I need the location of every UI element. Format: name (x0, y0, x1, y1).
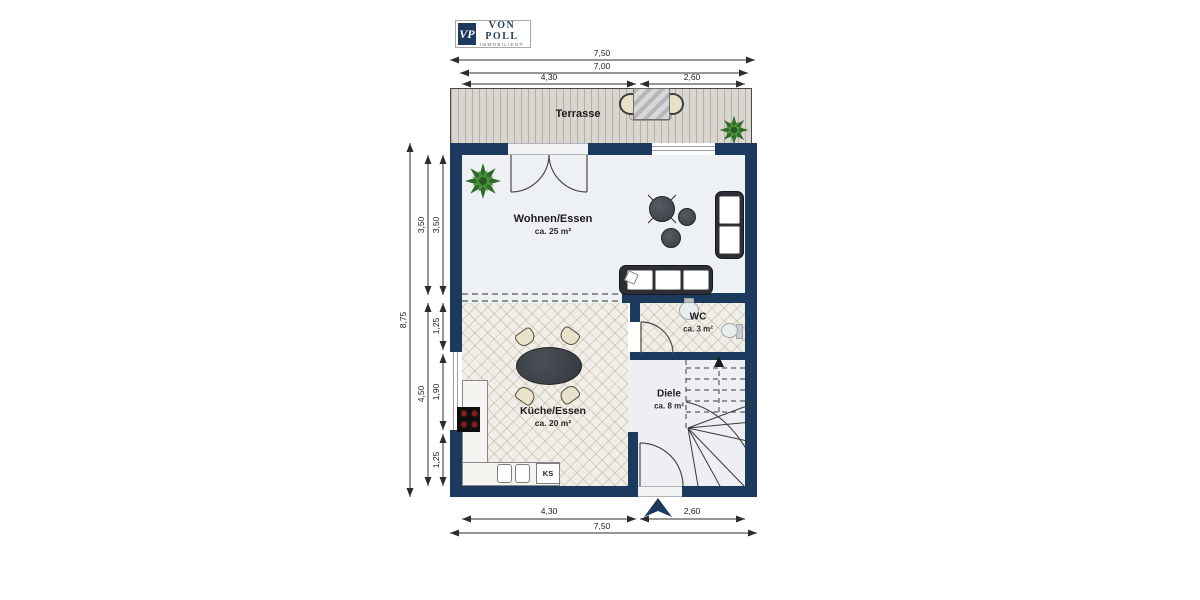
dining-table (516, 347, 582, 385)
terrace-deck (450, 88, 752, 143)
dim-left-living: 3,50 (416, 217, 426, 234)
sofa-right-cushion-2 (719, 226, 740, 254)
stove (457, 407, 480, 432)
wall-bottom-right (682, 486, 757, 497)
fridge: KS (536, 463, 560, 484)
label-terrasse: Terrasse (555, 108, 600, 120)
area-wohnen: ca. 25 m² (535, 226, 571, 236)
entrance-arrow-icon (644, 498, 672, 517)
wall-right (745, 143, 757, 497)
terrace-table (633, 88, 670, 120)
label-kueche: Küche/Essen (520, 405, 586, 417)
wall-top-mid (588, 143, 652, 155)
wc-sink-tap (684, 298, 694, 303)
dim-bottom-total: 7,50 (594, 521, 611, 531)
sink-basin-right (515, 464, 530, 483)
dim-left-total: 8,75 (398, 312, 408, 329)
sink-basin-left (497, 464, 512, 483)
floor-plan-canvas: VP VON POLL IMMOBILIEN® (0, 0, 1200, 600)
dim-top-inner: 7,00 (594, 61, 611, 71)
fridge-label: KS (543, 469, 553, 478)
dim-left-window: 1,90 (431, 384, 441, 401)
hall-floor (628, 352, 745, 486)
area-wc: ca. 3 m² (683, 325, 713, 334)
area-kueche: ca. 20 m² (535, 418, 571, 428)
sofa-bottom-cushion-3 (683, 270, 709, 290)
area-diele: ca. 8 m² (654, 402, 684, 411)
brand-monogram: VP (458, 23, 476, 45)
brand-subtitle: IMMOBILIEN® (480, 42, 524, 48)
wall-wc-bottom (630, 352, 757, 360)
brand-logo: VP VON POLL IMMOBILIEN® (455, 20, 531, 48)
terrace-door-threshold (508, 143, 588, 155)
sofa-bottom-cushion-2 (655, 270, 681, 290)
wall-left-upper (450, 143, 462, 352)
dim-left-seg2: 1,25 (431, 452, 441, 469)
dim-top-left: 4,30 (541, 72, 558, 82)
brand-text: VON POLL IMMOBILIEN® (476, 20, 528, 48)
coffee-table-small (661, 228, 681, 248)
window-top (652, 143, 715, 155)
sofa-right-cushion-1 (719, 196, 740, 224)
brand-name: VON POLL (480, 20, 524, 42)
coffee-table-medium (678, 208, 696, 226)
dim-top-right: 2,60 (684, 72, 701, 82)
wall-bottom-left (450, 486, 638, 497)
dim-bottom-left: 4,30 (541, 506, 558, 516)
dim-left-seg1: 1,25 (431, 318, 441, 335)
wall-wc-left (630, 293, 640, 322)
wall-kitchen-hall (628, 432, 638, 486)
coffee-table-large (649, 196, 675, 222)
dim-bottom-right: 2,60 (684, 506, 701, 516)
label-diele: Diele (657, 389, 681, 400)
toilet (721, 323, 738, 338)
dim-top-total: 7,50 (594, 48, 611, 58)
label-wc: WC (690, 312, 707, 323)
dim-left-living-inner: 3,50 (431, 217, 441, 234)
dim-left-kitchen: 4,50 (416, 386, 426, 403)
label-wohnen: Wohnen/Essen (514, 213, 593, 225)
entrance-threshold (638, 486, 682, 497)
